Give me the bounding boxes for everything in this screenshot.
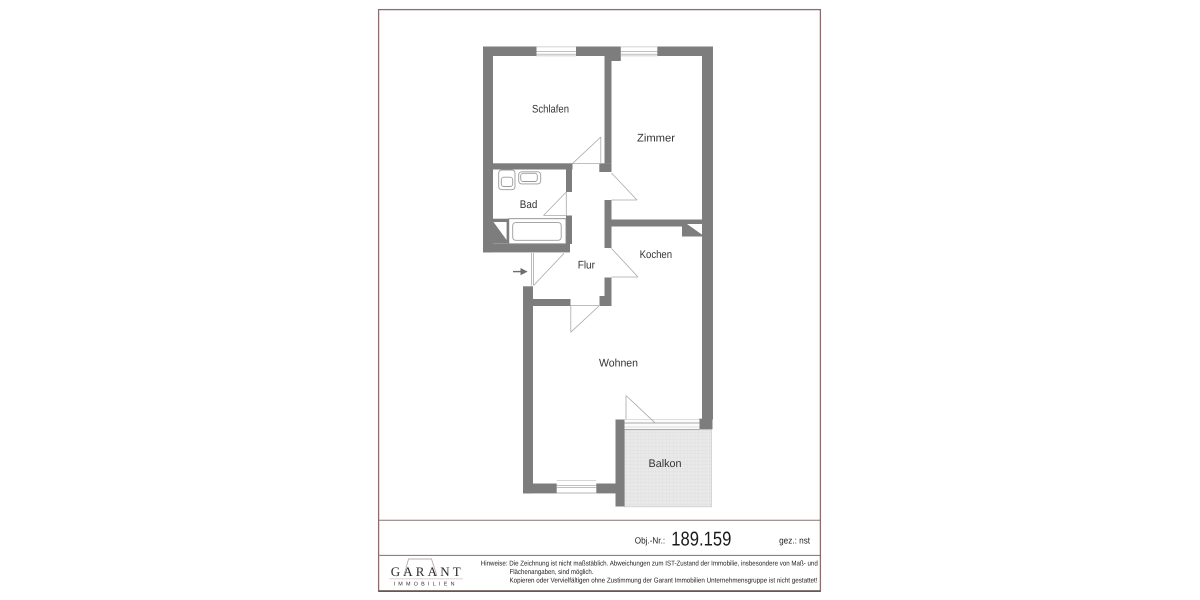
svg-text:Kochen: Kochen <box>640 249 673 261</box>
svg-text:IMMOBILIEN: IMMOBILIEN <box>394 581 455 587</box>
svg-text:Schlafen: Schlafen <box>532 103 569 115</box>
svg-text:Bad: Bad <box>520 199 538 211</box>
svg-text:Hinweise: Die Zeichnung ist ni: Hinweise: Die Zeichnung ist nicht maßstä… <box>481 559 818 567</box>
svg-text:Flächenangaben, sind möglich.: Flächenangaben, sind möglich. <box>510 568 594 576</box>
svg-text:Wohnen: Wohnen <box>599 357 638 369</box>
svg-text:GARANT: GARANT <box>391 564 461 579</box>
svg-text:Flur: Flur <box>578 260 596 272</box>
svg-text:Kopieren oder Vervielfältigen: Kopieren oder Vervielfältigen ohne Zusti… <box>510 576 818 584</box>
svg-text:Balkon: Balkon <box>649 458 682 470</box>
svg-text:Obj.-Nr.:: Obj.-Nr.: <box>635 536 665 546</box>
svg-text:gez.: nst: gez.: nst <box>779 536 810 546</box>
svg-text:189.159: 189.159 <box>671 529 731 551</box>
svg-text:Zimmer: Zimmer <box>637 132 675 144</box>
